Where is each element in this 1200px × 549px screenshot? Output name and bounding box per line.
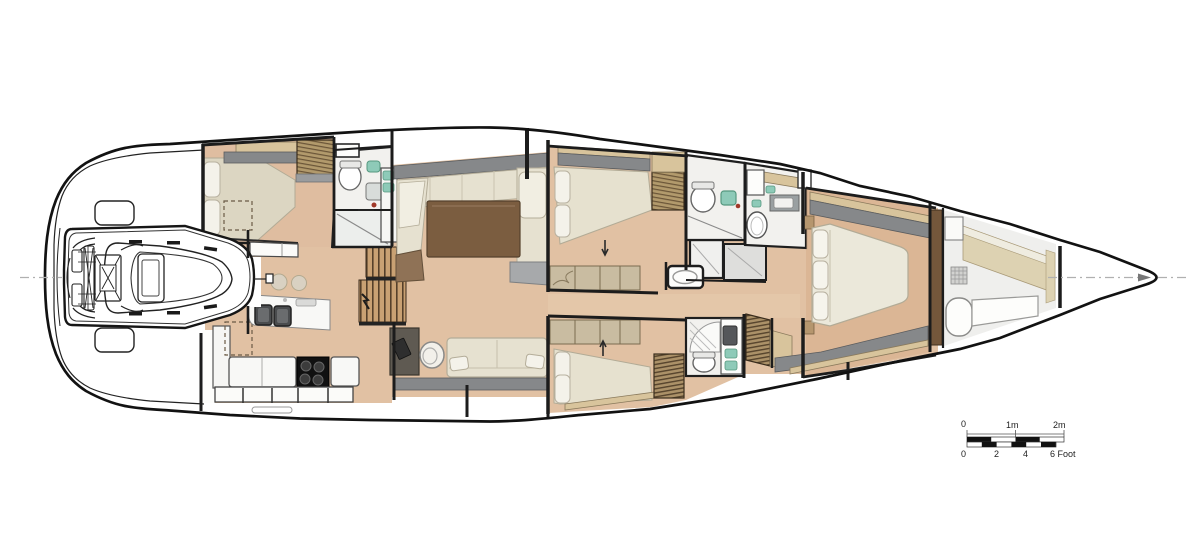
- svg-text:0: 0: [961, 419, 966, 429]
- svg-text:1m: 1m: [1006, 420, 1019, 430]
- svg-text:2: 2: [994, 449, 999, 459]
- svg-text:2m: 2m: [1053, 420, 1066, 430]
- svg-text:0: 0: [961, 449, 966, 459]
- svg-text:6 Foot: 6 Foot: [1050, 449, 1076, 459]
- svg-text:4: 4: [1023, 449, 1028, 459]
